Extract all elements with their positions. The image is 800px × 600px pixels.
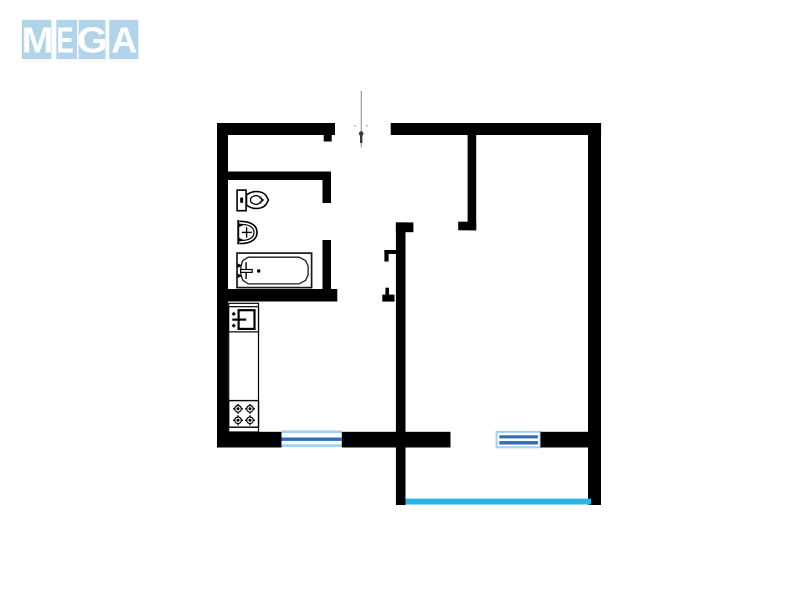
svg-text:A: A bbox=[111, 19, 137, 60]
svg-text:E: E bbox=[57, 20, 74, 60]
svg-text:G: G bbox=[77, 20, 108, 60]
svg-text:M: M bbox=[22, 20, 53, 60]
